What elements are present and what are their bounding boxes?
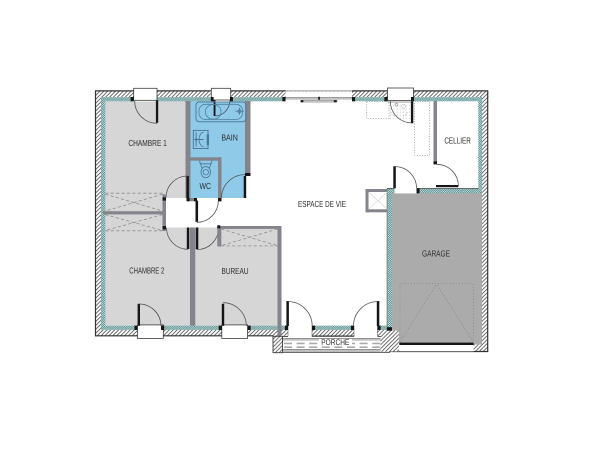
svg-text:PORCHE: PORCHE [321,338,349,347]
svg-text:CHAMBRE 1: CHAMBRE 1 [128,138,167,148]
svg-text:BAIN: BAIN [221,132,238,142]
svg-text:ESPACE DE VIE: ESPACE DE VIE [298,199,346,209]
svg-text:BUREAU: BUREAU [222,266,249,276]
svg-text:GARAGE: GARAGE [422,249,450,259]
svg-text:CELLIER: CELLIER [444,136,471,146]
svg-text:WC: WC [200,181,212,191]
svg-text:CHAMBRE 2: CHAMBRE 2 [129,266,164,276]
